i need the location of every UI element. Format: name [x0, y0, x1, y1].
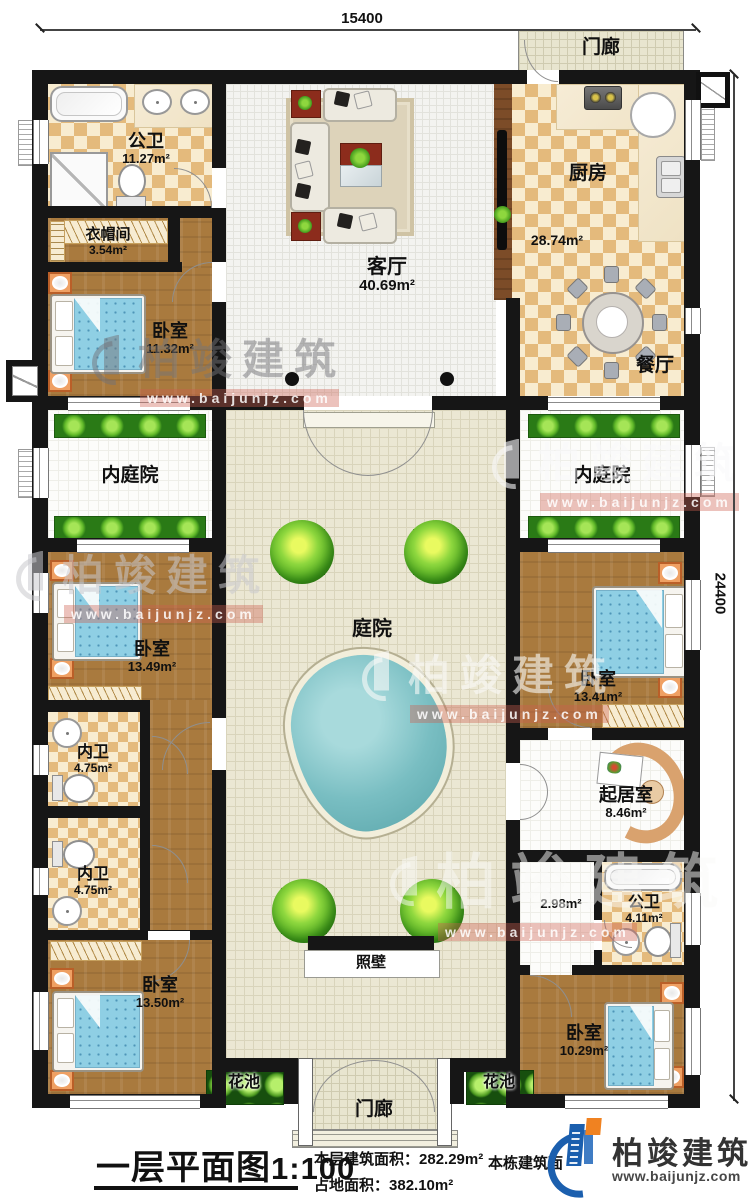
chair-icon: [556, 314, 571, 331]
plant-icon: [494, 206, 511, 223]
door-gap: [212, 262, 226, 302]
land-area-row: 占地面积：382.10m²: [314, 1174, 453, 1195]
plant-icon: [298, 219, 312, 233]
window: [685, 580, 701, 650]
wall-court-bottom-b: [464, 1058, 506, 1072]
wall-sitting-bottom: [520, 850, 684, 862]
tv-icon: [497, 130, 507, 250]
wardrobe-icon: [50, 941, 142, 961]
window: [685, 893, 701, 945]
cloakroom-label: 衣帽间3.54m²: [58, 227, 158, 257]
dimension-tick: [691, 23, 701, 33]
wall-court-bottom-a: [226, 1058, 284, 1072]
bath-top-label: 公卫11.27m²: [102, 132, 190, 166]
floor-area-row: 本层建筑面积：282.29m²: [314, 1148, 483, 1169]
shower-icon: [50, 152, 108, 210]
hall-e-floor: [520, 862, 594, 975]
flower-right-label: 花池: [483, 1074, 515, 1091]
wall-bath-w-divider: [48, 806, 140, 818]
window: [685, 445, 701, 497]
door-pivot-dot: [285, 372, 299, 386]
kitchen-area-label: 28.74m²: [514, 233, 600, 248]
flower-left-label: 花池: [228, 1074, 260, 1091]
window-sill: [18, 449, 33, 498]
nightstand-icon: [660, 982, 684, 1004]
wall-porch-stub-right: [450, 1058, 464, 1104]
window: [548, 397, 660, 411]
brand-logo-icon: [548, 1116, 610, 1190]
nightstand-icon: [48, 272, 72, 294]
inner-court-left-label: 内庭院: [78, 466, 182, 487]
tree-icon: [404, 520, 468, 584]
kitchen-sink-icon: [656, 156, 686, 198]
screen-wall-label: 照壁: [356, 954, 386, 971]
window: [685, 100, 701, 160]
plant-icon: [350, 148, 370, 168]
planter-strip: [54, 516, 206, 540]
planter-strip: [54, 414, 206, 438]
door-gap: [148, 931, 190, 940]
kitchen-label: 厨房: [546, 164, 630, 185]
porch-column: [298, 1058, 313, 1146]
screen-wall-top: [308, 936, 434, 950]
sofa-cushion: [334, 91, 351, 108]
nightstand-icon: [50, 560, 74, 581]
bed-icon: [592, 586, 688, 678]
wall-dining-bottom-right: [660, 396, 684, 410]
window: [548, 539, 660, 553]
nightstand-icon: [50, 1070, 74, 1091]
planter-strip: [528, 516, 680, 540]
floorplan-sheet: 15400 24400 门廊: [0, 0, 750, 1203]
inner-court-right-label: 内庭院: [550, 466, 654, 487]
dimension-line-top: [40, 29, 696, 31]
sink-icon: [142, 89, 172, 115]
door-gap: [594, 920, 602, 950]
bedroom-e2-label: 卧室13.41m²: [544, 670, 652, 704]
toilet-icon: [114, 164, 148, 208]
wall-outer-top: [32, 70, 700, 84]
dimension-tick: [35, 23, 45, 33]
sofa-cushion: [337, 213, 354, 230]
bath-w1-label: 内卫4.75m²: [52, 744, 134, 775]
wall-dining-bottom-left: [506, 396, 548, 410]
wall-bedroom-e3-top-b: [572, 965, 684, 975]
desk-icon: [596, 752, 643, 788]
hall-e-label: 2.98m²: [530, 897, 592, 911]
toilet-icon: [52, 772, 96, 802]
stove-icon: [584, 86, 622, 110]
chair-icon: [604, 266, 619, 283]
wall-cloak-bottom: [48, 262, 182, 272]
wall-west-corridor: [140, 700, 150, 940]
nightstand-icon: [50, 968, 74, 989]
window: [68, 397, 190, 411]
planter-strip: [528, 414, 680, 438]
dining-label: 餐厅: [624, 356, 686, 377]
tree-icon: [272, 879, 336, 943]
porch-top-label: 门廊: [582, 37, 620, 58]
chair-icon: [604, 362, 619, 379]
wall-bedroom-w2-bottom: [48, 700, 148, 712]
courtyard-label: 庭院: [330, 618, 414, 640]
bedroom-nw-corridor-floor: [180, 218, 212, 268]
sink-icon: [52, 896, 82, 926]
toilet-icon: [644, 920, 682, 960]
nightstand-icon: [658, 676, 682, 698]
dimension-line-right: [733, 75, 735, 1101]
bathtub-icon: [604, 863, 682, 891]
window: [33, 120, 49, 164]
side-entry-left-door: [12, 366, 38, 396]
plant-icon: [298, 96, 312, 110]
wardrobe-icon: [602, 704, 686, 728]
window: [33, 868, 49, 895]
dimension-right-value: 24400: [712, 564, 729, 624]
wall-bedroom-e2-bottom-b: [592, 728, 684, 740]
porch-bottom-label: 门廊: [355, 1099, 393, 1120]
round-table-icon: [630, 92, 676, 138]
wall-porch-stub-left: [284, 1058, 298, 1104]
nightstand-icon: [658, 562, 682, 584]
brand-url: www.baijunjz.com: [612, 1168, 741, 1184]
door-gap: [506, 763, 520, 820]
wall-bedroom-e2-bottom-a: [520, 728, 548, 740]
sink-icon: [180, 89, 210, 115]
window-sill: [701, 102, 715, 161]
bathtub-icon: [50, 86, 128, 122]
window-sill: [701, 447, 715, 497]
wall-west-wing: [212, 70, 226, 1108]
bedroom-w3-label: 卧室13.50m²: [112, 976, 208, 1010]
window: [33, 573, 49, 613]
tree-icon: [270, 520, 334, 584]
wall-living-bottom-right: [432, 396, 506, 410]
sofa-cushion: [295, 139, 312, 156]
sofa-cushion: [295, 183, 312, 200]
bedroom-nw-label: 卧室11.32m²: [126, 322, 214, 356]
wall-hall-bath-divider: [594, 862, 602, 975]
door-gap: [212, 168, 226, 208]
flue-box-right: [696, 72, 730, 108]
window: [33, 448, 49, 498]
wall-living-bottom-left: [226, 396, 304, 410]
window: [33, 745, 49, 775]
wall-bedroom-e3-top-a: [520, 965, 530, 975]
living-label: 客厅40.69m²: [344, 256, 430, 295]
window: [70, 1095, 200, 1109]
title-underline: [94, 1186, 298, 1190]
chair-icon: [652, 314, 667, 331]
brand-name: 柏竣建筑: [612, 1128, 750, 1173]
bath-e-label: 公卫4.11m²: [606, 894, 682, 925]
door-gap: [212, 718, 226, 770]
dining-table-icon: [582, 292, 644, 354]
sitting-label: 起居室8.46m²: [568, 786, 684, 820]
dimension-top-value: 15400: [322, 10, 402, 27]
wall-east-wing: [506, 298, 520, 1108]
bedroom-e3-label: 卧室10.29m²: [532, 1024, 636, 1058]
window-sill: [18, 120, 33, 166]
wall-cloak-right: [168, 218, 180, 262]
coffee-table-glass: [340, 165, 382, 187]
tree-icon: [400, 879, 464, 943]
nightstand-icon: [50, 658, 74, 679]
window: [565, 1095, 668, 1109]
bedroom-w2-label: 卧室13.49m²: [104, 640, 200, 674]
toilet-icon: [52, 838, 96, 868]
window: [77, 539, 189, 553]
window: [685, 1008, 701, 1075]
door-pivot-dot: [440, 372, 454, 386]
bath-w2-label: 内卫4.75m²: [52, 866, 134, 897]
window: [685, 308, 701, 334]
window: [33, 992, 49, 1050]
